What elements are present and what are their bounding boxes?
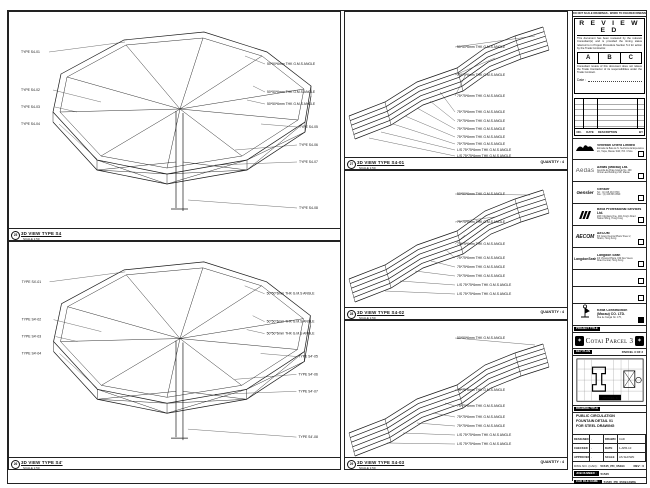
panel-title: 3D VIEW TYPE S4 <box>21 231 61 236</box>
approved-value: - <box>590 453 604 462</box>
annotation-label: 75*75*6mm THK G.M.S ANGLE <box>457 424 506 428</box>
date-label: Date : <box>577 78 586 82</box>
annotation-label: 75*75*6mm THK G.M.S ANGLE <box>457 142 506 146</box>
panel-title: 3D VIEW TYPE S4' <box>21 460 63 465</box>
grade-a: A <box>578 53 599 63</box>
annotation-label: 75*75*6mm THK G.M.S ANGLE <box>457 119 506 123</box>
leader-lines <box>369 36 535 156</box>
company-row-empty <box>573 287 646 304</box>
annotation-label: TYPE S4'-03 <box>22 335 42 339</box>
company-row-aedas: Aedas Aedas (Macau) Ltd. Avenida da Prai… <box>573 160 646 182</box>
panel-3d-view-s4-03: 50*50*6mm THK G.M.S ANGLE 75*75*6mm THK … <box>344 320 568 470</box>
drawing-sheet: TYPE S4-01 TYPE S4-02 TYPE S4-03 TYPE S4… <box>0 0 650 488</box>
company-row-beca: Beca Professional Services Ltd. 20/F Cit… <box>573 204 646 226</box>
annotation-label: 75*75*6mm THK G.M.S ANGLE <box>457 242 506 246</box>
annotation-label: TYPE S4-03 <box>21 105 40 109</box>
revision-table: NO. DATE DESCRIPTION BY <box>574 98 645 136</box>
panel-title-bar: 27 3D VIEW TYPE S4-01 SCALE 1:50 QUANTIT… <box>345 157 567 169</box>
company-row-venetian: Venetian Orient Limited Estrada da Baia … <box>573 138 646 160</box>
panel-title-bar: 26 3D VIEW TYPE S4' SCALE 1:50 <box>9 457 340 469</box>
annotation-label: TYPE S4-04 <box>21 122 40 126</box>
annotation-label: 75*75*6mm THK G.M.S ANGLE <box>457 127 506 131</box>
dwg-number-label: DWG NO. (CAD) : <box>574 464 598 468</box>
title-block: DO NOT SCALE DRAWINGS - WORK TO FIGURED … <box>572 11 646 481</box>
annotation-label: 75*75*6mm THK G.M.S ANGLE <box>457 404 506 408</box>
beca-logo <box>574 206 596 224</box>
reviewed-paragraph: This document has been reviewed by the r… <box>577 37 642 51</box>
approved-label: APPROVED <box>573 453 590 462</box>
langdon-seah-logo: LangdonSeah <box>574 257 596 261</box>
wireframe-angles-s4-02: 50*50*6mm THK G.M.S ANGLE 75*75*6mm THK … <box>345 171 569 309</box>
date-label: DATE <box>604 444 618 453</box>
annotation-label: TYPE S4'-04 <box>22 351 42 355</box>
annotation-label: 75*75*6mm THK G.M.S ANGLE <box>457 415 506 419</box>
review-checkbox-icon <box>638 151 645 158</box>
grade-b: B <box>599 53 620 63</box>
panel-title: 3D VIEW TYPE S4-01 <box>357 160 404 165</box>
panel-title: 3D VIEW TYPE S4-03 <box>357 460 404 465</box>
annotation-label: L/S 75*75*6mm THK G.M.S ANGLE <box>457 283 512 287</box>
annotation-label: 50*50*6mm THK G.M.S ANGLE <box>457 45 506 49</box>
venetian-logo <box>574 140 596 158</box>
panel-3d-view-s4-prime: TYPE S4'-01 TYPE S4'-02 TYPE S4'-03 TYPE… <box>8 241 341 470</box>
panel-title-bar: 25 3D VIEW TYPE S4 SCALE 1:50 <box>9 228 340 240</box>
panel-scale: SCALE 1:50 <box>23 237 40 241</box>
annotation-label: L/S 75*75*6mm THK G.M.S ANGLE <box>457 148 512 152</box>
detail-number-bubble: 26 <box>11 460 20 469</box>
annotation-label: TYPE S4'-08 <box>298 435 318 439</box>
review-checkbox-filled-icon <box>638 317 645 324</box>
company-row-empty <box>573 270 646 287</box>
dwg-number-value: 51545_PD_05494 <box>600 464 624 468</box>
ornament-icon: ✶ <box>575 336 584 346</box>
company-row-keda: Keda Construction (Macau) CO. LTD. Rua d… <box>573 304 646 326</box>
panel-title-bar: 28 3D VIEW TYPE S4-02 SCALE 1:50 QUANTIT… <box>345 307 567 319</box>
reviewed-stamp: R E V I E W E D This document has been r… <box>574 18 645 94</box>
company-name: Beca Professional Services Ltd. <box>597 208 645 216</box>
scale-value: AS SHOWN <box>618 453 646 462</box>
company-row-aecom: AECOM AECOM 8/F Grand Central Plaza Towe… <box>573 226 646 248</box>
drawing-title: PUBLIC CIRCULATION FOUNTAIN DETAIL 01 FO… <box>573 413 646 435</box>
dwg-number-row: DWG NO. (CAD) : 51545_PD_05494 REV : 0 <box>573 462 646 470</box>
sheet-disclaimer: DO NOT SCALE DRAWINGS - WORK TO FIGURED … <box>573 11 646 17</box>
grade-c: C <box>621 53 641 63</box>
dwg-rev: REV : 0 <box>633 464 645 468</box>
panel-quantity: QUANTITY : 4 <box>541 310 565 314</box>
site-plan-graphic: PARCEL 3 <box>575 358 645 404</box>
date-fill-line <box>588 77 642 82</box>
annotation-label: TYPE S4'-07 <box>298 389 318 393</box>
annotation-label: 75*75*6mm THK G.M.S ANGLE <box>457 110 506 114</box>
project-title-row: PROJECT TITLE <box>573 326 646 333</box>
aedas-logo: Aedas <box>574 168 596 174</box>
col-no: NO. <box>575 129 583 135</box>
drawn-label: DRAWN <box>604 435 618 444</box>
annotation-label: 75*75*6mm THK G.M.S ANGLE <box>457 220 506 224</box>
panel-scale: SCALE 1:50 <box>359 466 376 470</box>
review-checkbox-icon <box>638 278 645 285</box>
annotation-label: 75*75*6mm THK G.M.S ANGLE <box>457 256 506 260</box>
gensler-logo: Gensler <box>574 190 596 195</box>
annotation-label: L/S 75*75*6mm THK G.M.S ANGLE <box>457 433 512 437</box>
annotation-label: TYPE S4'-05 <box>298 354 318 358</box>
key-plan-row: KEY PLAN PARCEL 3 OF 3 <box>573 349 646 356</box>
drawing-title-line: FOR STEEL DRAWING <box>576 424 643 429</box>
job-number-row: JOB NUMBER : 51545 <box>573 470 646 478</box>
cad-file-label: CAD FILE NAME : <box>574 480 602 484</box>
panel-3d-view-s4-02: 50*50*6mm THK G.M.S ANGLE 75*75*6mm THK … <box>344 170 568 320</box>
project-name-band: ✶ Cotai Parcel 3 ✶ <box>573 333 646 349</box>
drawing-title-label: DRAWING TITLE <box>574 407 600 411</box>
cad-file-value: 51545_PD_05494.DWG <box>604 480 636 484</box>
key-plan-label: KEY PLAN <box>574 350 592 354</box>
review-checkbox-icon <box>638 173 645 180</box>
reviewed-paragraph-2: Consultant review of this document does … <box>577 65 642 75</box>
review-checkbox-icon <box>638 195 645 202</box>
annotation-label: 50*50*6mm THK G.M.S ANGLE <box>267 292 316 296</box>
checked-label: CHECKED <box>573 444 590 453</box>
detail-number-bubble: 28 <box>347 310 356 319</box>
annotation-label: 50*50*6mm THK G.M.S ANGLE <box>267 320 316 324</box>
reviewed-date-line: Date : <box>577 77 642 82</box>
annotation-label: 75*75*6mm THK G.M.S ANGLE <box>457 388 506 392</box>
annotation-label: 75*75*6mm THK G.M.S ANGLE <box>457 265 506 269</box>
detail-number-bubble: 29 <box>347 460 356 469</box>
checked-value: - <box>590 444 604 453</box>
annotation-label: TYPE S4-07 <box>299 160 318 164</box>
panel-title: 3D VIEW TYPE S4-02 <box>357 310 404 315</box>
drawing-info-table: DESIGNED - DRAWN CAD CHECKED - DATE 1-AP… <box>573 435 646 462</box>
annotation-label: 75*75*6mm THK G.M.S ANGLE <box>457 94 506 98</box>
panel-scale: SCALE 1:50 <box>23 466 40 470</box>
col-description: DESCRIPTION <box>597 129 638 135</box>
annotation-label: TYPE S4'-06 <box>298 372 318 376</box>
cad-file-row: CAD FILE NAME : 51545_PD_05494.DWG <box>573 478 646 486</box>
annotation-label: TYPE S4-01 <box>21 50 40 54</box>
keda-logo <box>574 304 596 325</box>
panel-scale: SCALE 1:50 <box>359 316 376 320</box>
annotation-label: 75*75*6mm THK G.M.S ANGLE <box>457 274 506 278</box>
reviewed-title: R E V I E W E D <box>577 20 642 36</box>
annotation-label: TYPE S4-08 <box>299 206 318 210</box>
annotation-label: 50*50*6mm THK G.M.S ANGLE <box>267 332 316 336</box>
annotation-label: TYPE S4-02 <box>21 88 40 92</box>
key-plan-map: PARCEL 3 <box>573 356 646 406</box>
company-row-langdon-seah: LangdonSeah Langdon Seah 4/F Vicwood Pla… <box>573 248 646 270</box>
col-date: DATE <box>583 129 597 135</box>
annotation-label: TYPE S4-06 <box>299 143 318 147</box>
annotation-label: L/S 75*75*6mm THK G.M.S ANGLE <box>457 442 512 446</box>
aecom-logo: AECOM <box>574 234 596 240</box>
panel-quantity: QUANTITY : 4 <box>541 160 565 164</box>
date-value: 1-APR-10 <box>618 444 646 453</box>
detail-number-bubble: 25 <box>11 231 20 240</box>
annotation-label: 75*75*6mm THK G.M.S ANGLE <box>457 73 506 77</box>
review-checkbox-icon <box>638 261 645 268</box>
detail-number-bubble: 27 <box>347 160 356 169</box>
panel-3d-view-s4: TYPE S4-01 TYPE S4-02 TYPE S4-03 TYPE S4… <box>8 11 341 241</box>
key-plan-parcel-tag: PARCEL 3 <box>602 395 617 399</box>
revision-table-header: NO. DATE DESCRIPTION BY <box>575 128 644 135</box>
wireframe-canopy-s4-prime: TYPE S4'-01 TYPE S4'-02 TYPE S4'-03 TYPE… <box>9 242 342 459</box>
review-checkbox-icon <box>638 295 645 302</box>
scale-label: SCALE <box>604 453 618 462</box>
wireframe-angles-s4-03: 50*50*6mm THK G.M.S ANGLE 75*75*6mm THK … <box>345 321 569 459</box>
project-name: Cotai Parcel 3 <box>586 337 634 345</box>
annotation-label: 50*50*6mm THK G.M.S ANGLE <box>267 62 316 66</box>
designed-value: - <box>590 435 604 444</box>
annotation-label: L/S 75*75*6mm THK G.M.S ANGLE <box>457 292 512 296</box>
panel-title-bar: 29 3D VIEW TYPE S4-03 SCALE 1:50 QUANTIT… <box>345 457 567 469</box>
designed-label: DESIGNED <box>573 435 590 444</box>
col-by: BY <box>638 129 644 135</box>
review-grade-row: A B C <box>577 52 642 64</box>
job-number-value: 51545 <box>601 472 609 476</box>
wireframe-angles-s4-01: 50*50*6mm THK G.M.S ANGLE 75*75*6mm THK … <box>345 12 569 159</box>
annotation-label: 50*50*6mm THK G.M.S ANGLE <box>267 102 316 106</box>
annotation-label: TYPE S4'-01 <box>22 280 42 284</box>
job-number-label: JOB NUMBER : <box>574 471 599 475</box>
annotation-label: 50*50*6mm THK G.M.S ANGLE <box>457 192 506 196</box>
company-row-gensler: Gensler Gensler Tel : (1) 415 433 3700 F… <box>573 182 646 204</box>
panel-quantity: QUANTITY : 4 <box>541 460 565 464</box>
review-checkbox-icon <box>638 217 645 224</box>
project-title-label: PROJECT TITLE <box>574 327 600 331</box>
wireframe-canopy-s4: TYPE S4-01 TYPE S4-02 TYPE S4-03 TYPE S4… <box>9 12 342 230</box>
review-checkbox-icon <box>638 239 645 246</box>
annotation-label: 50*50*6mm THK G.M.S ANGLE <box>267 90 316 94</box>
key-plan-note: PARCEL 3 OF 3 <box>622 350 645 354</box>
annotation-label: 75*75*6mm THK G.M.S ANGLE <box>457 135 506 139</box>
annotation-label: TYPE S4-05 <box>299 125 318 129</box>
drawn-value: CAD <box>618 435 646 444</box>
annotation-label: 50*50*6mm THK G.M.S ANGLE <box>457 336 506 340</box>
ornament-icon: ✶ <box>635 336 644 346</box>
annotation-label: TYPE S4'-02 <box>22 318 42 322</box>
panel-3d-view-s4-01: 50*50*6mm THK G.M.S ANGLE 75*75*6mm THK … <box>344 11 568 170</box>
panel-scale: SCALE 1:50 <box>359 166 376 170</box>
drawing-title-row: DRAWING TITLE <box>573 406 646 413</box>
